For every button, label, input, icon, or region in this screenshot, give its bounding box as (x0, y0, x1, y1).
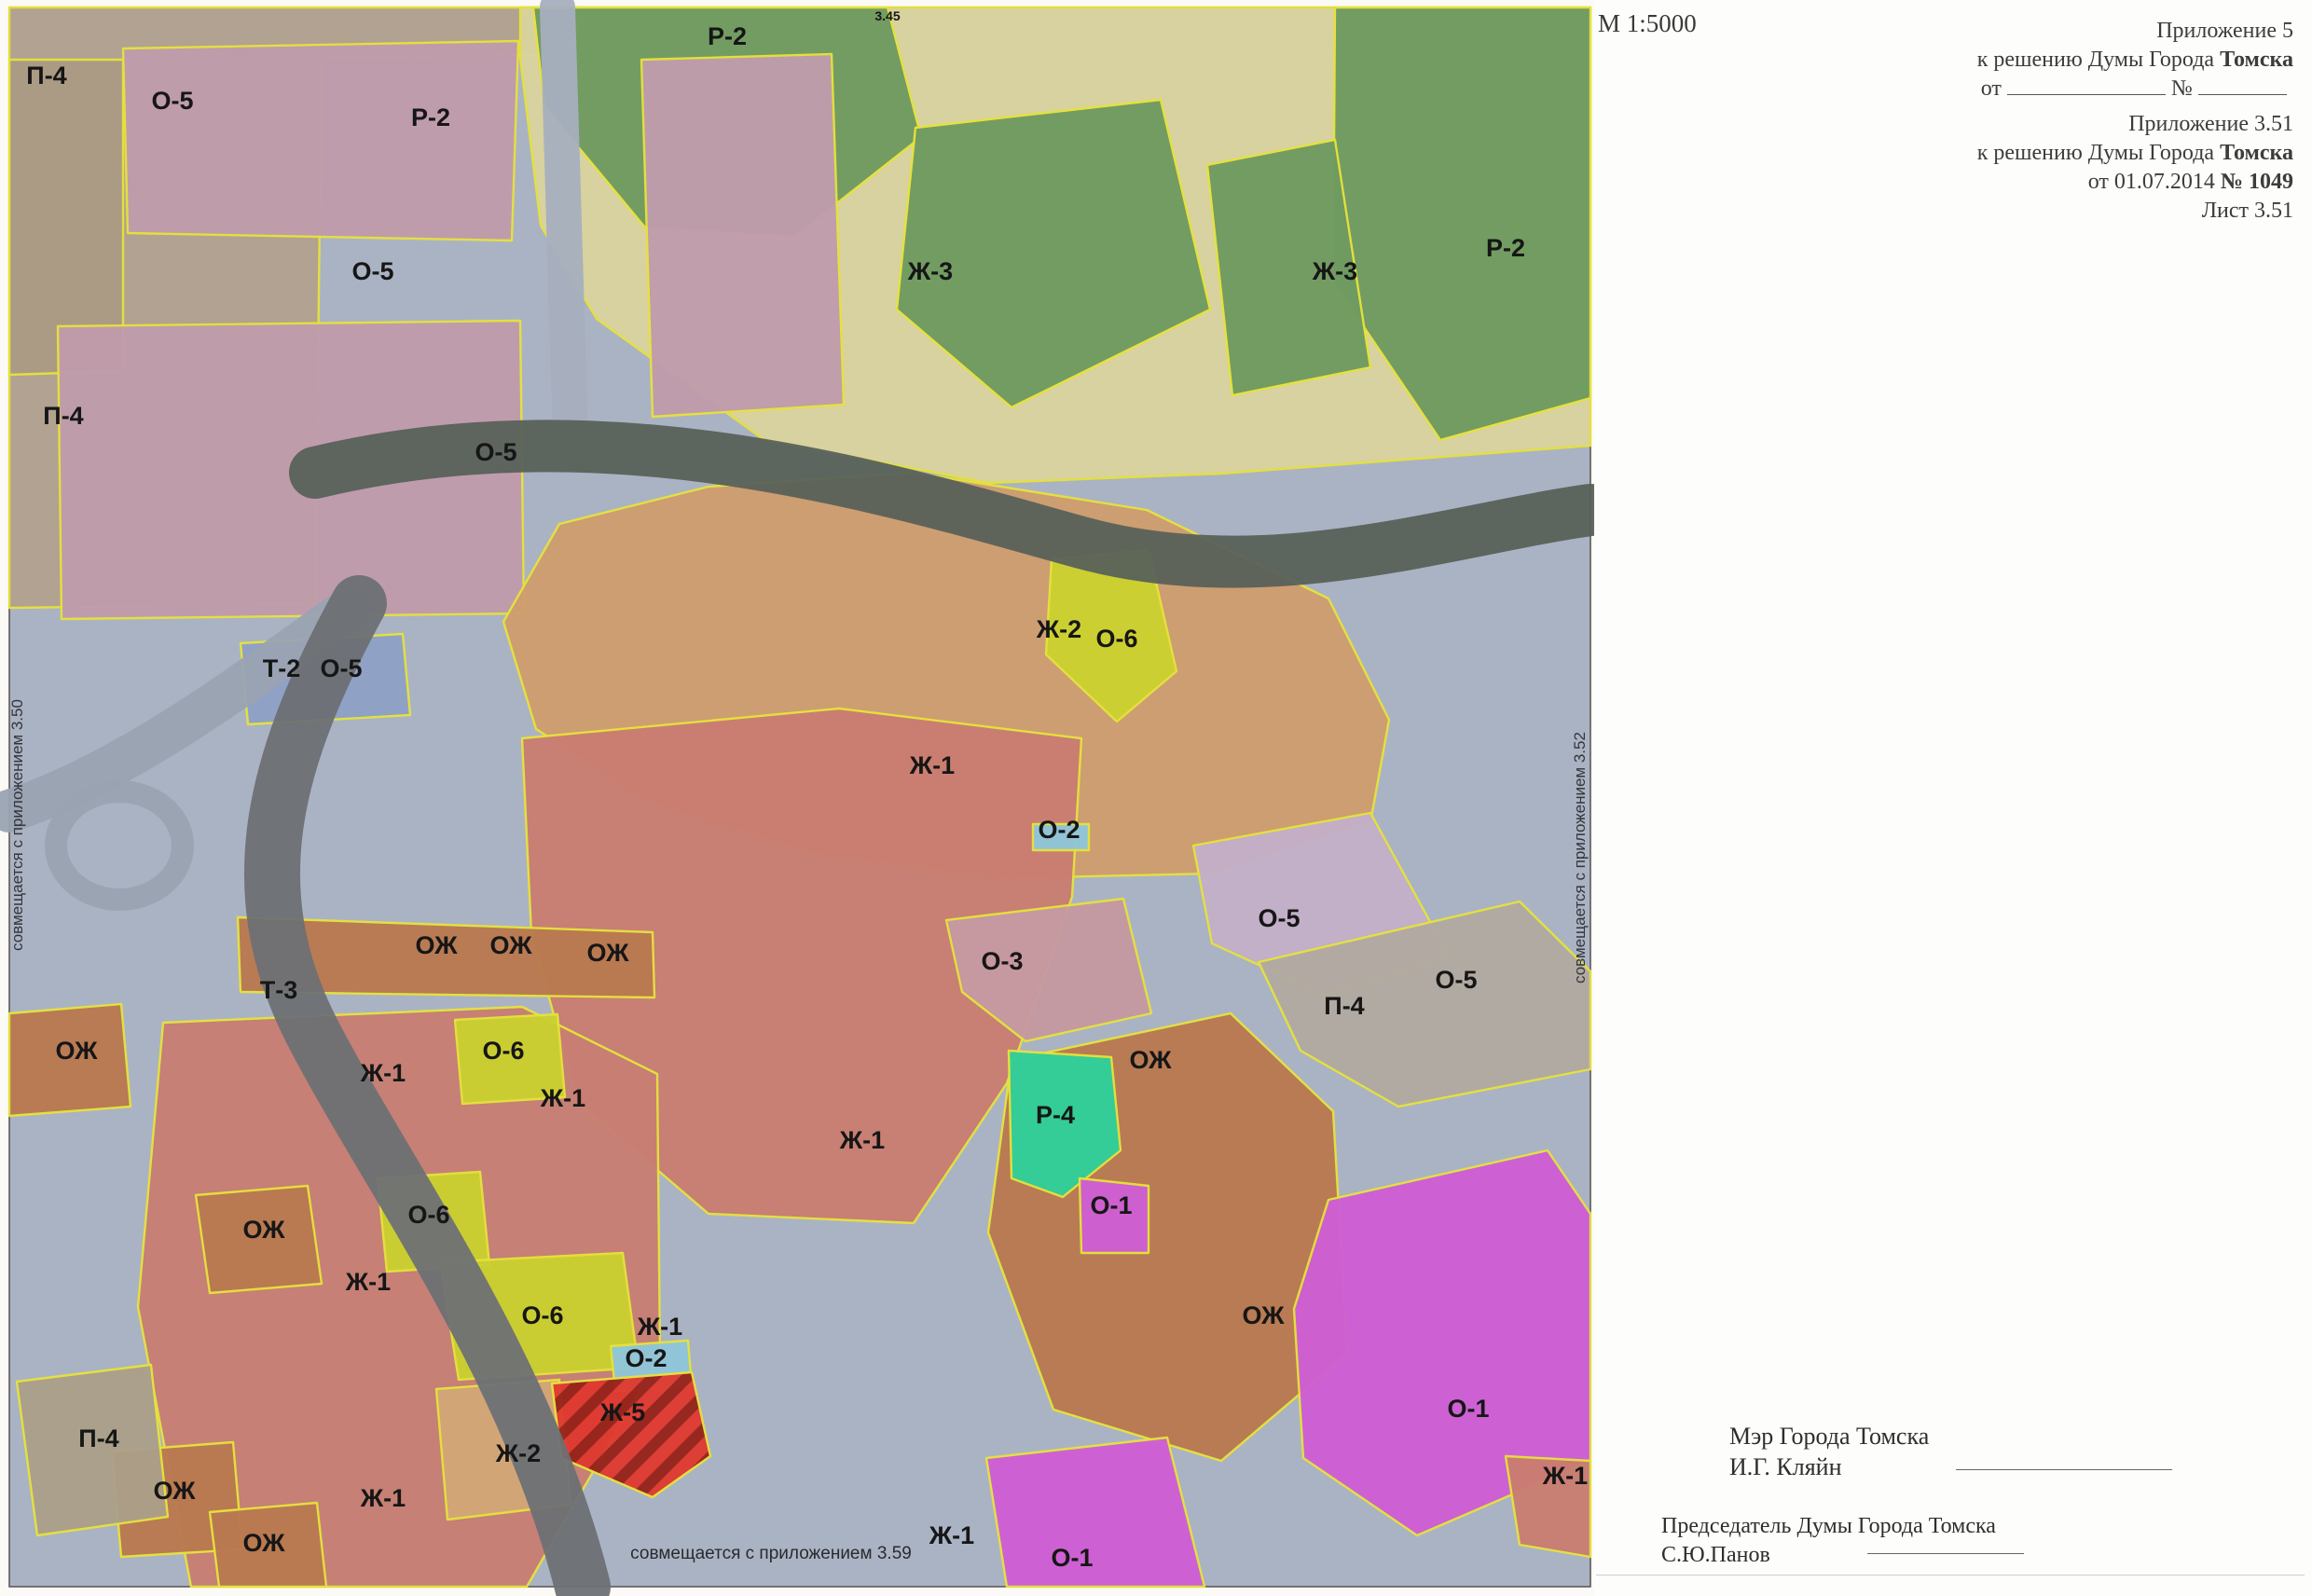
zone-label-О-6: О-6 (521, 1301, 563, 1329)
zone-label-Ж-1: Ж-1 (909, 751, 955, 779)
zone-label-Ж-1: Ж-1 (839, 1126, 885, 1154)
zone-label-ОЖ: ОЖ (242, 1216, 285, 1244)
zone-polygon-9 (641, 54, 844, 417)
zone-label-Р-2: Р-2 (1486, 234, 1525, 262)
zone-polygon-23 (986, 1438, 1204, 1587)
zone-label-О-1: О-1 (1090, 1191, 1132, 1219)
zone-label-ОЖ: ОЖ (1129, 1046, 1172, 1074)
zone-label-3.45: 3.45 (874, 8, 900, 23)
zone-label-Ж-1: Ж-1 (360, 1484, 406, 1512)
edge-note-left: совмещается с приложением 3.50 (8, 699, 26, 951)
mayor-title: Мэр Города Томска (1729, 1421, 1929, 1452)
num-blank-line (2198, 77, 2287, 95)
zone-label-П-4: П-4 (26, 62, 66, 89)
zone-label-О-3: О-3 (981, 947, 1023, 975)
mayor-signature-block: Мэр Города Томска И.Г. Кляйн (1729, 1421, 1929, 1482)
zone-label-О-1: О-1 (1051, 1544, 1093, 1572)
appendix-351-line1: Приложение 3.51 (1977, 110, 2293, 139)
zone-label-Ж-1: Ж-1 (929, 1521, 974, 1549)
zone-label-О-5: О-5 (475, 438, 516, 466)
decision-number: № 1049 (2221, 170, 2293, 194)
zone-label-ОЖ: ОЖ (55, 1037, 98, 1065)
zone-label-О-2: О-2 (1038, 816, 1080, 844)
map-scale-label: М 1:5000 (1598, 9, 1697, 38)
zone-polygon-2 (123, 41, 518, 241)
zone-label-О-5: О-5 (151, 87, 193, 115)
map-canvas: П-4О-5Р-2О-5П-4Р-2Ж-3Ж-3Р-2О-5Т-2О-5Ж-2О… (0, 0, 1594, 1596)
edge-note-bottom: совмещается с приложением 3.59 (630, 1544, 912, 1563)
appendix-5-header: Приложение 5 к решению Думы Города Томск… (1977, 17, 2293, 103)
zone-label-Ж-1: Ж-1 (360, 1059, 406, 1087)
zone-label-Р-2: Р-2 (411, 103, 450, 131)
zone-label-ОЖ: ОЖ (153, 1477, 196, 1505)
zone-label-П-4: П-4 (43, 402, 83, 430)
zone-label-П-4: П-4 (78, 1424, 118, 1452)
zoning-map: П-4О-5Р-2О-5П-4Р-2Ж-3Ж-3Р-2О-5Т-2О-5Ж-2О… (0, 0, 1594, 1596)
zone-label-Р-2: Р-2 (708, 22, 747, 50)
chair-signature-block: Председатель Думы Города Томска С.Ю.Пано… (1661, 1512, 1996, 1570)
zone-label-Ж-2: Ж-2 (495, 1439, 541, 1467)
sheet-number: Лист 3.51 (1977, 197, 2293, 226)
zone-label-Ж-1: Ж-1 (637, 1313, 682, 1341)
zone-label-П-4: П-4 (1324, 992, 1364, 1020)
zone-label-О-5: О-5 (351, 257, 393, 285)
chair-name: С.Ю.Панов (1661, 1541, 1996, 1570)
ot-label: от (1981, 76, 2002, 101)
edge-note-right: совмещается с приложением 3.52 (1571, 732, 1589, 984)
city-name-2: Томска (2220, 141, 2293, 165)
zone-label-О-5: О-5 (1258, 904, 1300, 932)
city-name: Томска (2220, 48, 2293, 72)
num-label: № (2171, 76, 2193, 101)
zone-label-О-5: О-5 (320, 654, 362, 682)
zone-label-Ж-3: Ж-3 (1312, 257, 1357, 285)
road-band-0 (557, 7, 571, 438)
zone-label-О-5: О-5 (1435, 966, 1477, 994)
zone-label-О-6: О-6 (407, 1201, 449, 1229)
mayor-signature-line (1956, 1469, 2172, 1470)
zoning-map-sheet: { "header": { "app1_line1": "Приложение … (0, 0, 2312, 1596)
zone-label-О-1: О-1 (1447, 1395, 1489, 1423)
zone-label-ОЖ: ОЖ (489, 931, 532, 959)
zone-label-Ж-1: Ж-1 (345, 1268, 391, 1296)
zone-label-Т-2: Т-2 (263, 654, 301, 682)
title-panel: М 1:5000 Приложение 5 к решению Думы Гор… (1594, 0, 2312, 1596)
zone-label-Ж-3: Ж-3 (907, 257, 953, 285)
chair-title: Председатель Думы Города Томска (1661, 1512, 1996, 1541)
zone-label-Ж-5: Ж-5 (599, 1398, 645, 1426)
mayor-name: И.Г. Кляйн (1729, 1452, 1929, 1482)
zone-label-ОЖ: ОЖ (415, 931, 458, 959)
zone-label-Ж-1: Ж-1 (1542, 1462, 1588, 1490)
zone-label-Ж-1: Ж-1 (540, 1084, 585, 1112)
appendix-351-header: Приложение 3.51 к решению Думы Города То… (1977, 110, 2293, 226)
zone-label-О-2: О-2 (625, 1344, 667, 1372)
zone-label-О-6: О-6 (1095, 625, 1137, 653)
date-blank-line (2007, 77, 2166, 95)
zone-label-ОЖ: ОЖ (586, 939, 629, 967)
zone-label-Т-3: Т-3 (260, 976, 298, 1004)
chair-signature-line (1867, 1553, 2024, 1554)
appendix-5-line1: Приложение 5 (1977, 17, 2293, 46)
zone-label-Р-4: Р-4 (1036, 1101, 1075, 1129)
zone-label-ОЖ: ОЖ (242, 1529, 285, 1557)
zone-label-Ж-2: Ж-2 (1036, 615, 1081, 643)
zone-label-О-6: О-6 (482, 1037, 524, 1065)
sheet-bottom-rule (1596, 1575, 2305, 1575)
zone-label-ОЖ: ОЖ (1242, 1301, 1285, 1329)
